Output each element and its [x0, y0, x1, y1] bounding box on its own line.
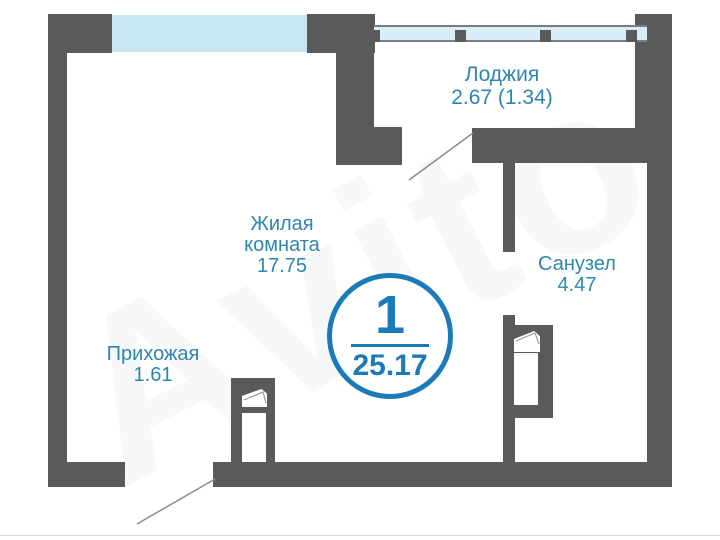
total-area: 25.17: [352, 351, 427, 381]
loggia-door-swing-line: [409, 133, 473, 180]
room-area: 4.47: [507, 275, 647, 296]
room-name: Прихожая: [83, 344, 223, 365]
entrance-door-swing-line: [137, 479, 215, 524]
room-name: Санузел: [507, 254, 647, 275]
room-area: 2.67 (1.34): [402, 86, 602, 109]
room-label-hallway: Прихожая 1.61: [83, 344, 223, 386]
badge-divider: [351, 344, 429, 347]
room-label-loggia: Лоджия 2.67 (1.34): [402, 63, 602, 109]
photo-bottom-edge: [0, 535, 720, 536]
apartment-summary-badge: 1 25.17: [327, 273, 453, 399]
room-name: Лоджия: [402, 63, 602, 86]
room-name: Жилая комната: [212, 214, 352, 256]
hallway-leaf-slant-line: [244, 392, 266, 403]
room-label-bathroom: Санузел 4.47: [507, 254, 647, 296]
room-area: 1.61: [83, 365, 223, 386]
room-label-living: Жилая комната 17.75: [212, 214, 352, 277]
room-area: 17.75: [212, 256, 352, 277]
floor-plan: Avito Жилая комната 17.75 Прихожая 1: [0, 0, 720, 540]
bathroom-leaf-slant-line: [516, 333, 539, 344]
rooms-count: 1: [375, 291, 405, 339]
